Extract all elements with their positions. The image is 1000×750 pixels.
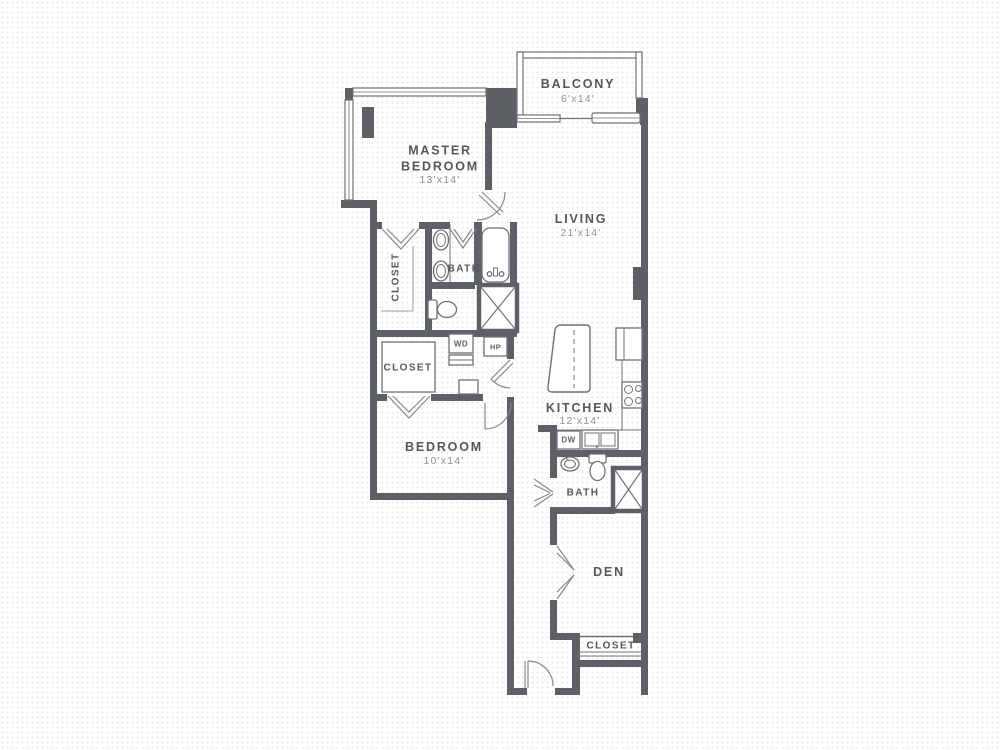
niche-box <box>459 380 478 394</box>
balcony-label: BALCONY <box>541 77 615 91</box>
den-doors <box>557 546 574 599</box>
master-bath-door <box>450 229 476 248</box>
shaft-box <box>613 468 644 511</box>
balcony-dims: 6'x14' <box>561 93 595 105</box>
bath2-fixtures <box>561 454 606 481</box>
kitchen-label: KITCHEN <box>546 401 614 415</box>
master-bedroom-dims: 13'x14' <box>419 174 460 186</box>
sliding-door <box>592 113 640 123</box>
living-pilaster <box>633 267 641 300</box>
living-label: LIVING <box>555 212 607 226</box>
bedroom-closet-doors <box>388 396 430 418</box>
kitchen-dims: 12'x14' <box>559 415 600 427</box>
den-label: DEN <box>593 565 625 579</box>
bedroom-closet-label: CLOSET <box>384 363 433 374</box>
entry-door <box>525 661 553 688</box>
toilet-tank <box>428 300 437 319</box>
bath2-label: BATH <box>567 488 600 499</box>
hall-door <box>491 360 513 388</box>
bedroom-column <box>362 107 374 138</box>
master-bedroom-label: MASTER BEDROOM <box>380 143 500 174</box>
floorplan-page: BALCONY 6'x14' MASTER BEDROOM 13'x14' LI… <box>0 0 1000 750</box>
master-bedroom-door <box>477 192 505 220</box>
kitchen-island <box>548 325 590 392</box>
toilet-bowl <box>438 302 457 318</box>
toilet-bowl <box>590 462 605 481</box>
master-shower <box>479 285 517 331</box>
kitchen-fixtures <box>548 325 642 449</box>
bedroom-dims: 10'x14' <box>423 455 464 467</box>
bath2-doors <box>534 479 553 507</box>
den-closet-label: CLOSET <box>587 641 636 652</box>
heat-pump-label: HP <box>490 342 501 351</box>
refrigerator <box>616 328 642 360</box>
floorplan-drawing <box>0 0 1000 750</box>
washer-dryer-label: WD <box>454 340 468 349</box>
dishwasher-label: DW <box>561 436 575 445</box>
bedroom-label: BEDROOM <box>405 440 483 454</box>
master-bath-label: BATH <box>448 264 481 275</box>
master-closet-label: CLOSET <box>391 253 402 302</box>
living-dims: 21'x14' <box>560 227 601 239</box>
